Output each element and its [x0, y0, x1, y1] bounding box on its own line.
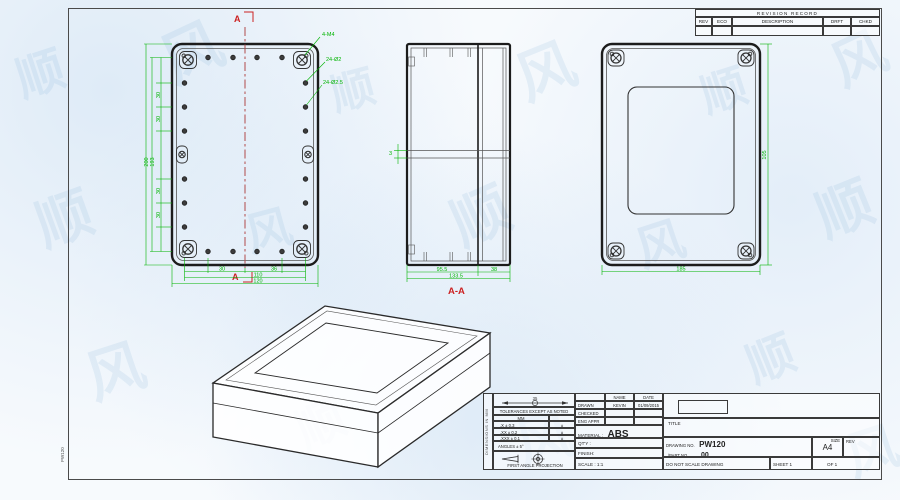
dim-back-width: 185 [676, 267, 685, 273]
drft-empty-cell [823, 26, 851, 36]
callout-large-holes: 24-Ø2.5 [323, 80, 343, 86]
title-top-cell [663, 393, 880, 418]
rev-col-header: REV [695, 17, 712, 26]
eco-empty-cell [712, 26, 732, 36]
dim-style-symbol-cell: 35 [493, 393, 575, 407]
dim-pitch-v4: 30 [156, 212, 162, 218]
side-strip-note: DIMENSIONS IN MM [484, 394, 492, 469]
section-marker-bottom: A [232, 272, 239, 282]
dim-style-symbol: 35 [494, 394, 575, 407]
logo-box [678, 400, 728, 414]
callout-corner-screws: 4-M4 [322, 32, 335, 38]
eng-appr-date [634, 417, 663, 425]
eng-appr-name [605, 417, 634, 425]
title-block-side-strip: DIMENSIONS IN MM [483, 393, 493, 470]
chkd-empty-cell [851, 26, 880, 36]
dim-pitch-v3: 30 [156, 188, 162, 194]
size-value: A4 [813, 443, 842, 452]
dim-style-note: 35 [533, 396, 538, 401]
dim-width-overall: 120 [253, 279, 262, 285]
rev-cell: REV [843, 437, 880, 457]
title-cell: TITLE [663, 418, 880, 437]
dim-pitch-h1: 30 [219, 267, 225, 273]
drawing-no-cell: DRAWING NO. PW120 /PART NO. 00 [663, 437, 812, 457]
do-not-scale-note: DO NOT SCALE DRAWING [663, 457, 770, 470]
dim-lid-depth: 38 [491, 267, 497, 273]
drft-col-header: DRFT [823, 17, 851, 26]
drawn-label: DRAWN [575, 401, 605, 409]
back-corner-bosses [608, 50, 754, 259]
chkd-col-header: CHKD [851, 17, 880, 26]
iso-view [213, 306, 490, 467]
rev-empty-cell [695, 26, 712, 36]
description-col-header: DESCRIPTION [732, 17, 823, 26]
projection-label: FIRST ANGLE PROJECTION [494, 463, 575, 468]
sheet-cell: SHEET 1 [770, 457, 812, 470]
section-line-A [243, 12, 253, 282]
projection-cell: FIRST ANGLE PROJECTION [493, 451, 575, 470]
tolerance-mark-1: ± [549, 421, 575, 428]
section-ribs [409, 48, 471, 261]
dim-pitch-v1: 30 [156, 92, 162, 98]
dim-overall-depth: 133.5 [449, 274, 463, 280]
drawing-sheet: 顺风顺风顺风顺风顺风顺风顺风顺风 [0, 0, 900, 500]
section-marker-top: A [234, 14, 241, 24]
checked-date [634, 409, 663, 417]
section-view [407, 44, 510, 265]
angles-tolerance: ANGLES ± 5° [493, 441, 575, 451]
qty-label: QT'Y : [575, 438, 663, 448]
date-col-header: DATE [634, 393, 663, 401]
tolerance-heading: TOLERANCES EXCEPT AS NOTED [493, 407, 575, 415]
tolerance-row-2: .XX ± 0.2 [493, 428, 549, 435]
lid-recess-panel [628, 87, 734, 214]
revision-table-title: REVISION RECORD [695, 9, 880, 17]
title-label: TITLE [668, 421, 681, 426]
drawn-name: KEVIN [605, 401, 634, 409]
dim-height-holes: 193 [150, 157, 156, 166]
eco-col-header: ECO [712, 17, 732, 26]
signoff-corner-cell [575, 393, 605, 401]
dim-back-height: 105 [762, 150, 768, 159]
checked-label: CHECKED [575, 409, 605, 417]
back-view [602, 44, 760, 265]
section-view-label: A-A [448, 286, 465, 297]
title-block: DIMENSIONS IN MM 35 TOLERANCES EXCEPT AS… [483, 393, 880, 470]
front-view-dim-labels: 200 193 30 30 30 30 30 36 110 120 4-M4 2… [144, 32, 343, 285]
callout-small-holes: 24-Ø2 [326, 57, 341, 63]
checked-name [605, 409, 634, 417]
tolerance-row-1: .X ± 0.3 [493, 421, 549, 428]
tolerance-mark-2: ± [549, 428, 575, 435]
sheet-of-cell: OF 1 [812, 457, 880, 470]
frame-side-label: PW120 [60, 447, 65, 462]
dim-body-depth: 95.5 [437, 267, 448, 273]
scale-label: SCALE : 1:1 [575, 458, 663, 470]
finish-label: FINISH: [575, 448, 663, 458]
material-cell: MATERIAL : ABS [575, 425, 663, 438]
dim-pitch-v2: 30 [156, 116, 162, 122]
size-cell: SIZE A4 [812, 437, 843, 457]
description-empty-cell [732, 26, 823, 36]
material-value: ABS [607, 429, 628, 438]
name-col-header: NAME [605, 393, 634, 401]
drawn-date: 01/09/2015 [634, 401, 663, 409]
dim-wall: 3 [389, 151, 392, 157]
eng-appr-label: ENG APPR [575, 417, 605, 425]
dim-pitch-h2: 36 [271, 267, 277, 273]
revision-table: REVISION RECORD REV ECO DESCRIPTION DRFT… [695, 9, 880, 36]
